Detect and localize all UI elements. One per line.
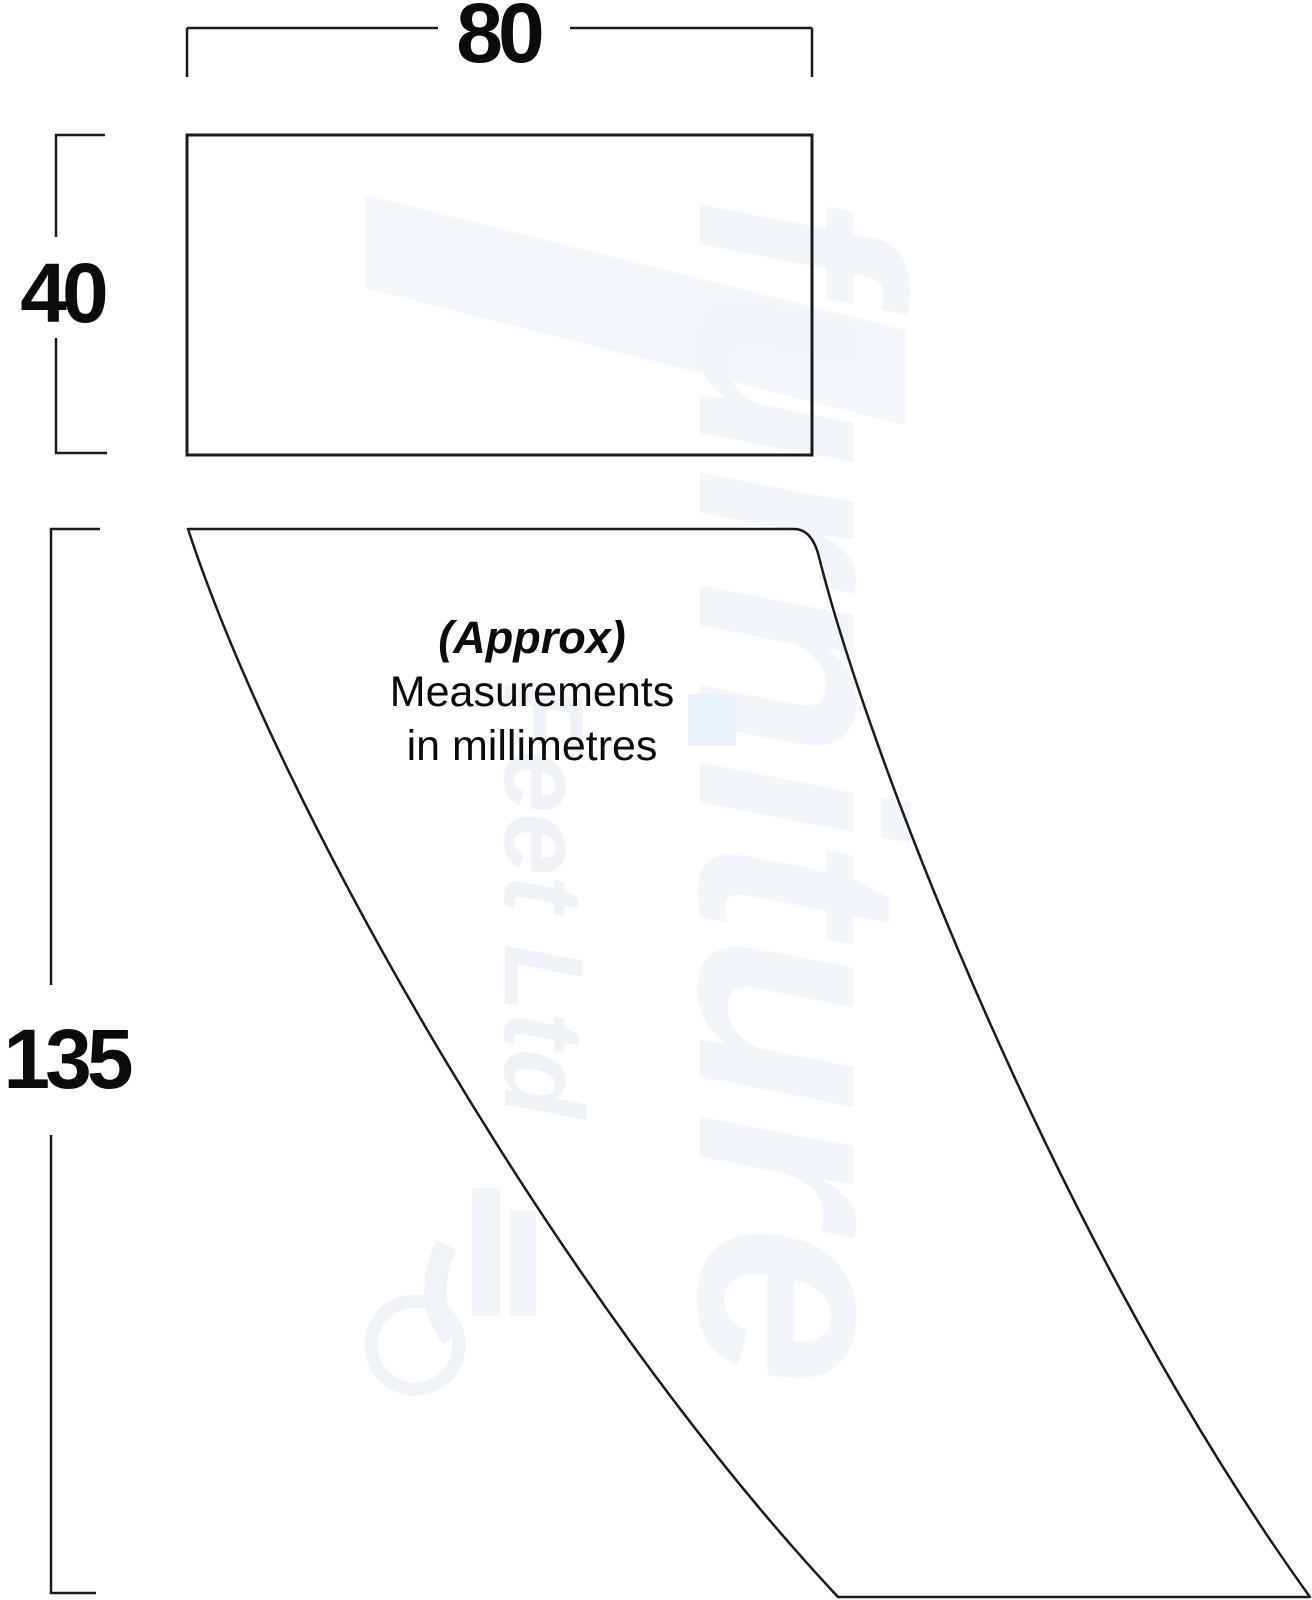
width-dim-label: 80 <box>398 0 598 77</box>
note-measurements: Measurements <box>282 665 782 719</box>
dimension-drawing: furniture Feet Ltd 80 40 135 (Approx) <box>0 0 1312 1600</box>
note-approx: (Approx) <box>282 611 782 665</box>
height-dim-label: 135 <box>0 1015 166 1103</box>
watermark-bar-1 <box>472 1188 500 1316</box>
depth-dim-label: 40 <box>0 249 162 337</box>
watermark-brand-text: furniture <box>638 194 962 1386</box>
note-millimetres: in millimetres <box>282 719 782 773</box>
watermark: furniture Feet Ltd <box>365 194 962 1389</box>
drawing-svg: furniture Feet Ltd <box>0 0 1312 1600</box>
watermark-castor-hook-icon <box>435 1245 452 1337</box>
measurement-note: (Approx) Measurements in millimetres <box>282 611 782 773</box>
watermark-bar-2 <box>510 1210 536 1316</box>
